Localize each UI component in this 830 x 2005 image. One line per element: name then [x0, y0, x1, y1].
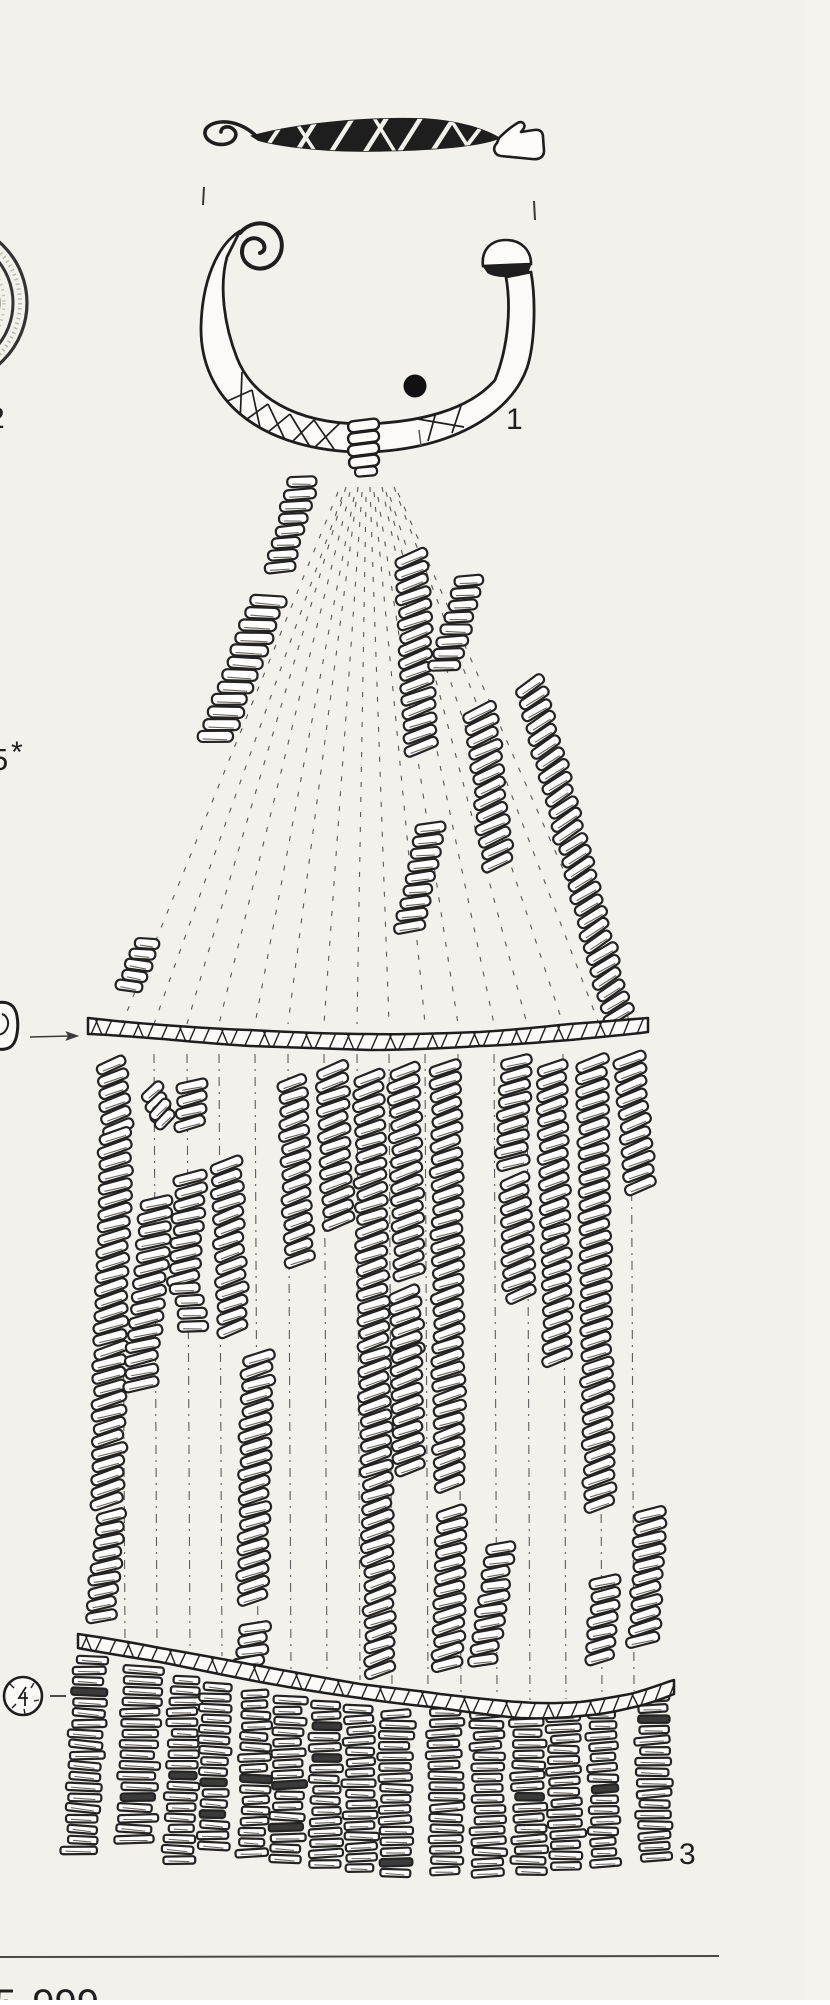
svg-text:5999: 5999 [0, 1982, 99, 2000]
svg-text:1: 1 [506, 403, 523, 436]
svg-text:3: 3 [679, 1838, 696, 1871]
svg-text:2: 2 [0, 402, 5, 435]
svg-text:*: * [11, 736, 23, 769]
svg-text:5: 5 [0, 742, 8, 777]
